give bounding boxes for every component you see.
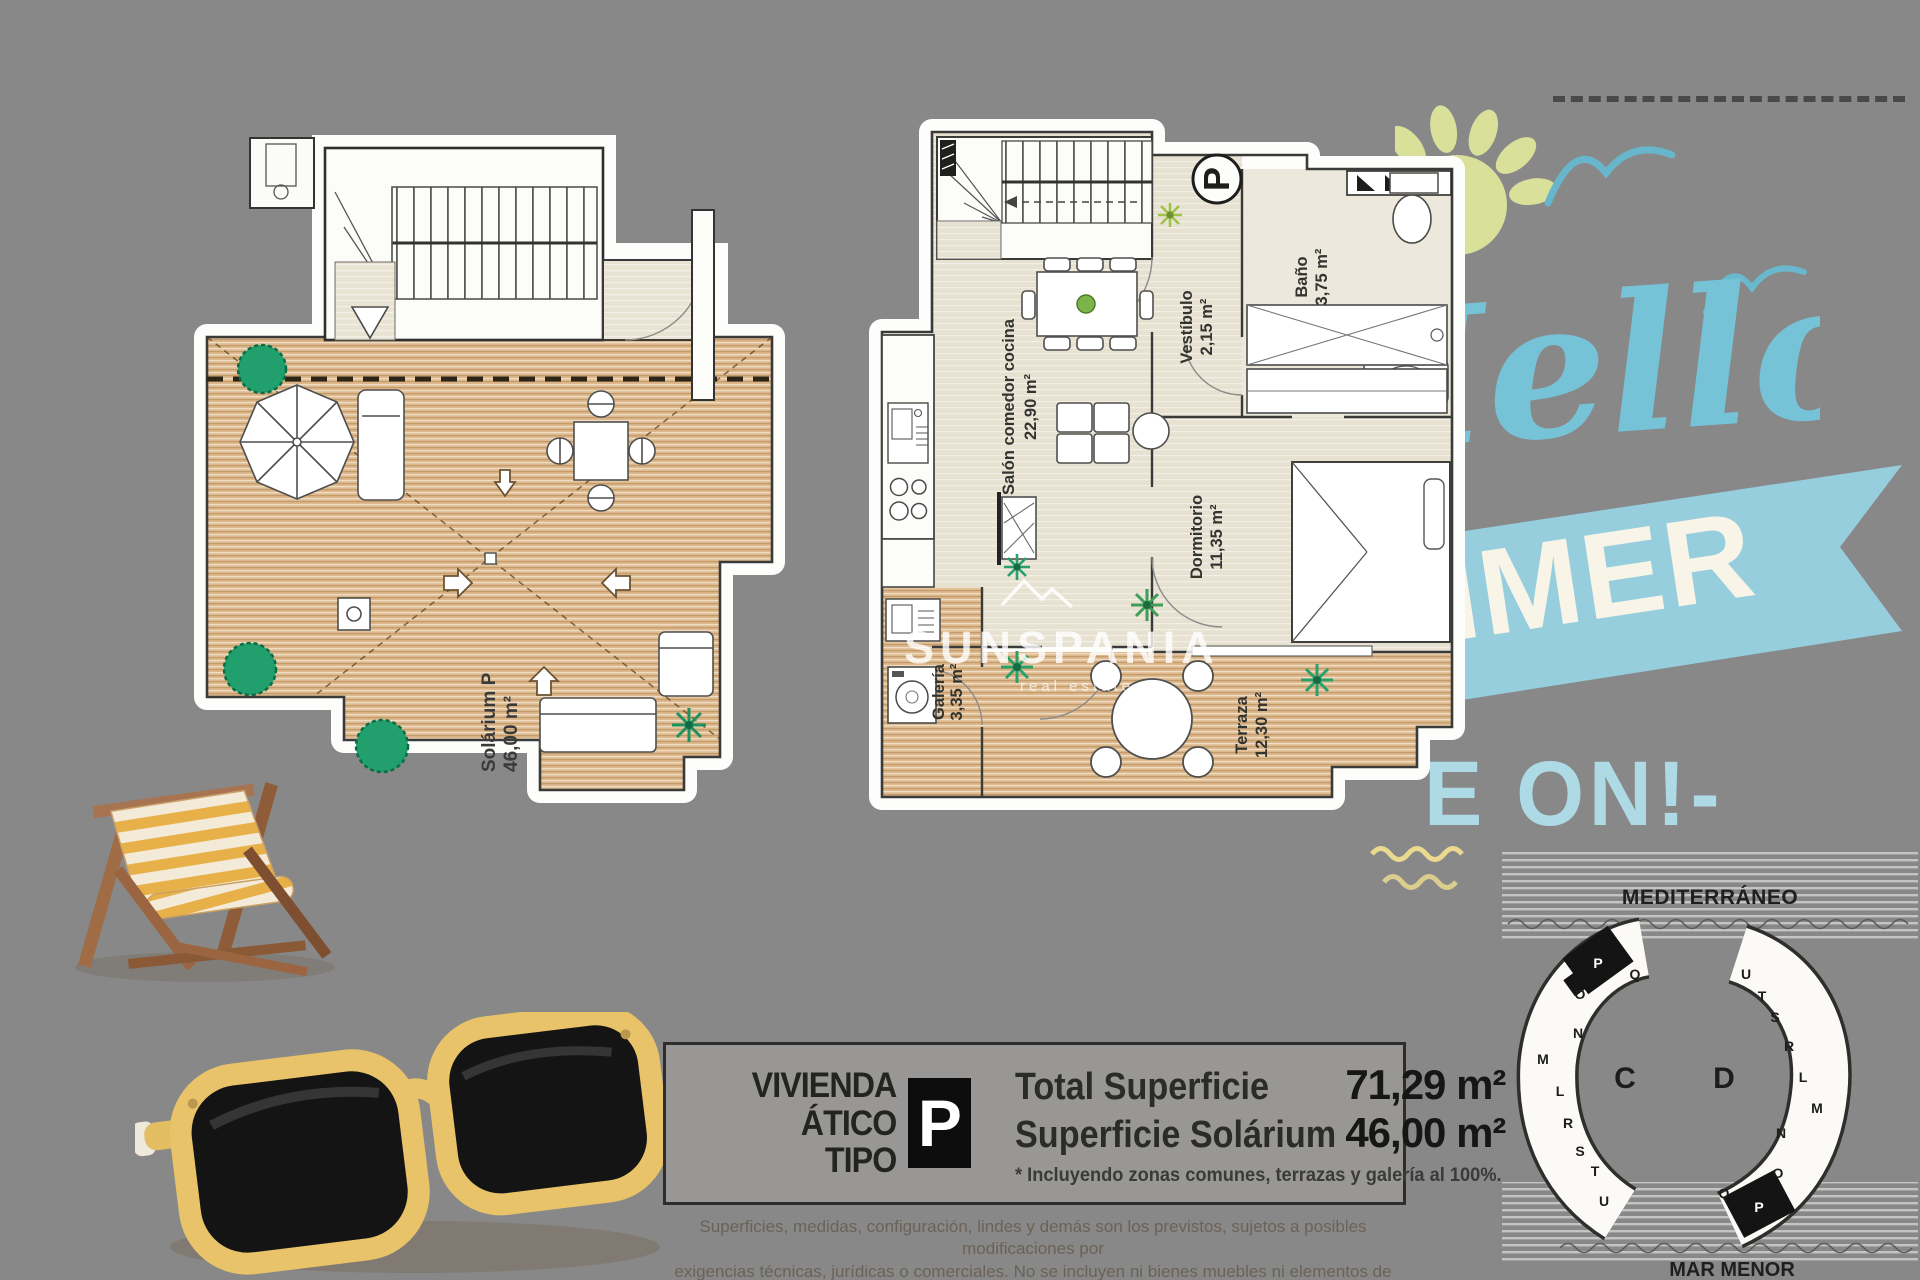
svg-text:Q: Q — [1630, 966, 1641, 982]
left-lens — [174, 1054, 425, 1271]
building-c: P Q O N M L R S T U C — [1537, 926, 1644, 1214]
svg-text:N: N — [1776, 1125, 1786, 1141]
svg-text:P: P — [1196, 167, 1237, 191]
block-d-label: D — [1713, 1062, 1735, 1095]
dwelling-line2: ÁTICO TIPO — [743, 1105, 896, 1181]
svg-text:2,15 m²: 2,15 m² — [1198, 298, 1216, 355]
stairs — [937, 137, 1152, 259]
solarium-area: 46,00 m² — [501, 696, 522, 772]
svg-text:R: R — [1563, 1115, 1573, 1131]
svg-text:S: S — [1770, 1009, 1779, 1025]
svg-text:Terraza: Terraza — [1233, 695, 1251, 753]
vestibule — [603, 260, 703, 340]
svg-text:O: O — [1575, 986, 1586, 1002]
svg-text:U: U — [1741, 966, 1751, 982]
flyer-canvas: Hello SUMMER E ON!- — [0, 0, 1920, 1280]
svg-text:Vestíbulo: Vestíbulo — [1178, 290, 1196, 363]
svg-text:11,35 m²: 11,35 m² — [1208, 504, 1226, 570]
svg-text:L: L — [1556, 1083, 1565, 1099]
mediterraneo-label: MEDITERRÁNEO — [1622, 886, 1798, 909]
svg-text:T: T — [1591, 1163, 1600, 1179]
solarium-surface-value: 46,00 m² — [1345, 1109, 1505, 1157]
footnote: * Incluyendo zonas comunes, terrazas y g… — [1015, 1165, 1502, 1187]
type-badge: P — [908, 1078, 971, 1168]
toilet-icon — [1393, 195, 1431, 243]
deck-chair-photo — [55, 760, 355, 985]
svg-text:12,30 m²: 12,30 m² — [1253, 691, 1271, 758]
site-map: MEDITERRÁNEO P Q O N M L R S T U C — [1502, 852, 1918, 1280]
svg-text:S: S — [1575, 1143, 1584, 1159]
dwelling-name: VIVIENDA ÁTICO TIPO — [743, 1067, 896, 1180]
svg-text:3,75 m²: 3,75 m² — [1313, 248, 1331, 305]
total-surface-value: 71,29 m² — [1345, 1061, 1505, 1109]
svg-text:L: L — [1799, 1069, 1808, 1085]
floor-plan-apartment: P — [852, 107, 1470, 919]
table-plant — [1077, 295, 1095, 313]
svg-text:Dormitorio: Dormitorio — [1188, 495, 1206, 579]
sun-lounger — [358, 390, 404, 500]
svg-text:P: P — [1754, 1199, 1763, 1215]
svg-text:22,90 m²: 22,90 m² — [1022, 373, 1040, 440]
side-table — [1133, 413, 1169, 449]
svg-text:M: M — [1537, 1051, 1549, 1067]
svg-text:T: T — [1758, 988, 1767, 1004]
building-d: U T S R L M N O Q P D — [1713, 954, 1823, 1238]
parking-badge: P — [1193, 155, 1241, 203]
sunglasses-photo — [135, 1012, 665, 1280]
bed — [1292, 462, 1450, 642]
pillow — [1424, 479, 1444, 549]
svg-text:N: N — [1573, 1025, 1583, 1041]
watermark-sub: real estate — [1020, 678, 1134, 695]
block-c-label: C — [1614, 1062, 1636, 1095]
svg-text:Salón comedor cocina: Salón comedor cocina — [1000, 318, 1018, 495]
mar-menor-label: MAR MENOR — [1669, 1259, 1795, 1280]
right-lens — [432, 1012, 664, 1211]
summary-box: VIVIENDA ÁTICO TIPO P Total Superficie 7… — [663, 1042, 1406, 1205]
floor-plan-solarium: Solárium P 46,00 m² — [192, 132, 804, 822]
stairs — [325, 148, 603, 340]
vestibule-plant — [1158, 203, 1182, 227]
cutoff-text-remnant — [1553, 96, 1905, 102]
legal-disclaimer: Superficies, medidas, configuración, lin… — [658, 1216, 1408, 1280]
svg-text:R: R — [1784, 1038, 1794, 1054]
total-surface-label: Total Superficie — [1015, 1066, 1312, 1109]
watermark-brand: SUNSPANIA — [904, 622, 1220, 673]
svg-text:U: U — [1599, 1193, 1609, 1209]
svg-text:P: P — [1593, 955, 1602, 971]
kitchen — [882, 335, 934, 587]
svg-text:Baño: Baño — [1293, 256, 1311, 297]
solarium-surface-label: Superficie Solárium — [1015, 1114, 1312, 1157]
deck-table — [574, 422, 628, 480]
armchair — [659, 632, 713, 696]
deck-center-node — [485, 553, 496, 564]
svg-text:O: O — [1773, 1165, 1784, 1181]
svg-text:Q: Q — [1719, 1185, 1730, 1201]
seagull-icon — [1540, 125, 1720, 235]
svg-text:M: M — [1811, 1100, 1823, 1116]
bench — [540, 698, 656, 752]
dwelling-line1: VIVIENDA — [743, 1067, 896, 1105]
pillar — [692, 210, 714, 400]
solarium-label: Solárium P — [479, 672, 500, 772]
utility-box — [250, 138, 314, 208]
